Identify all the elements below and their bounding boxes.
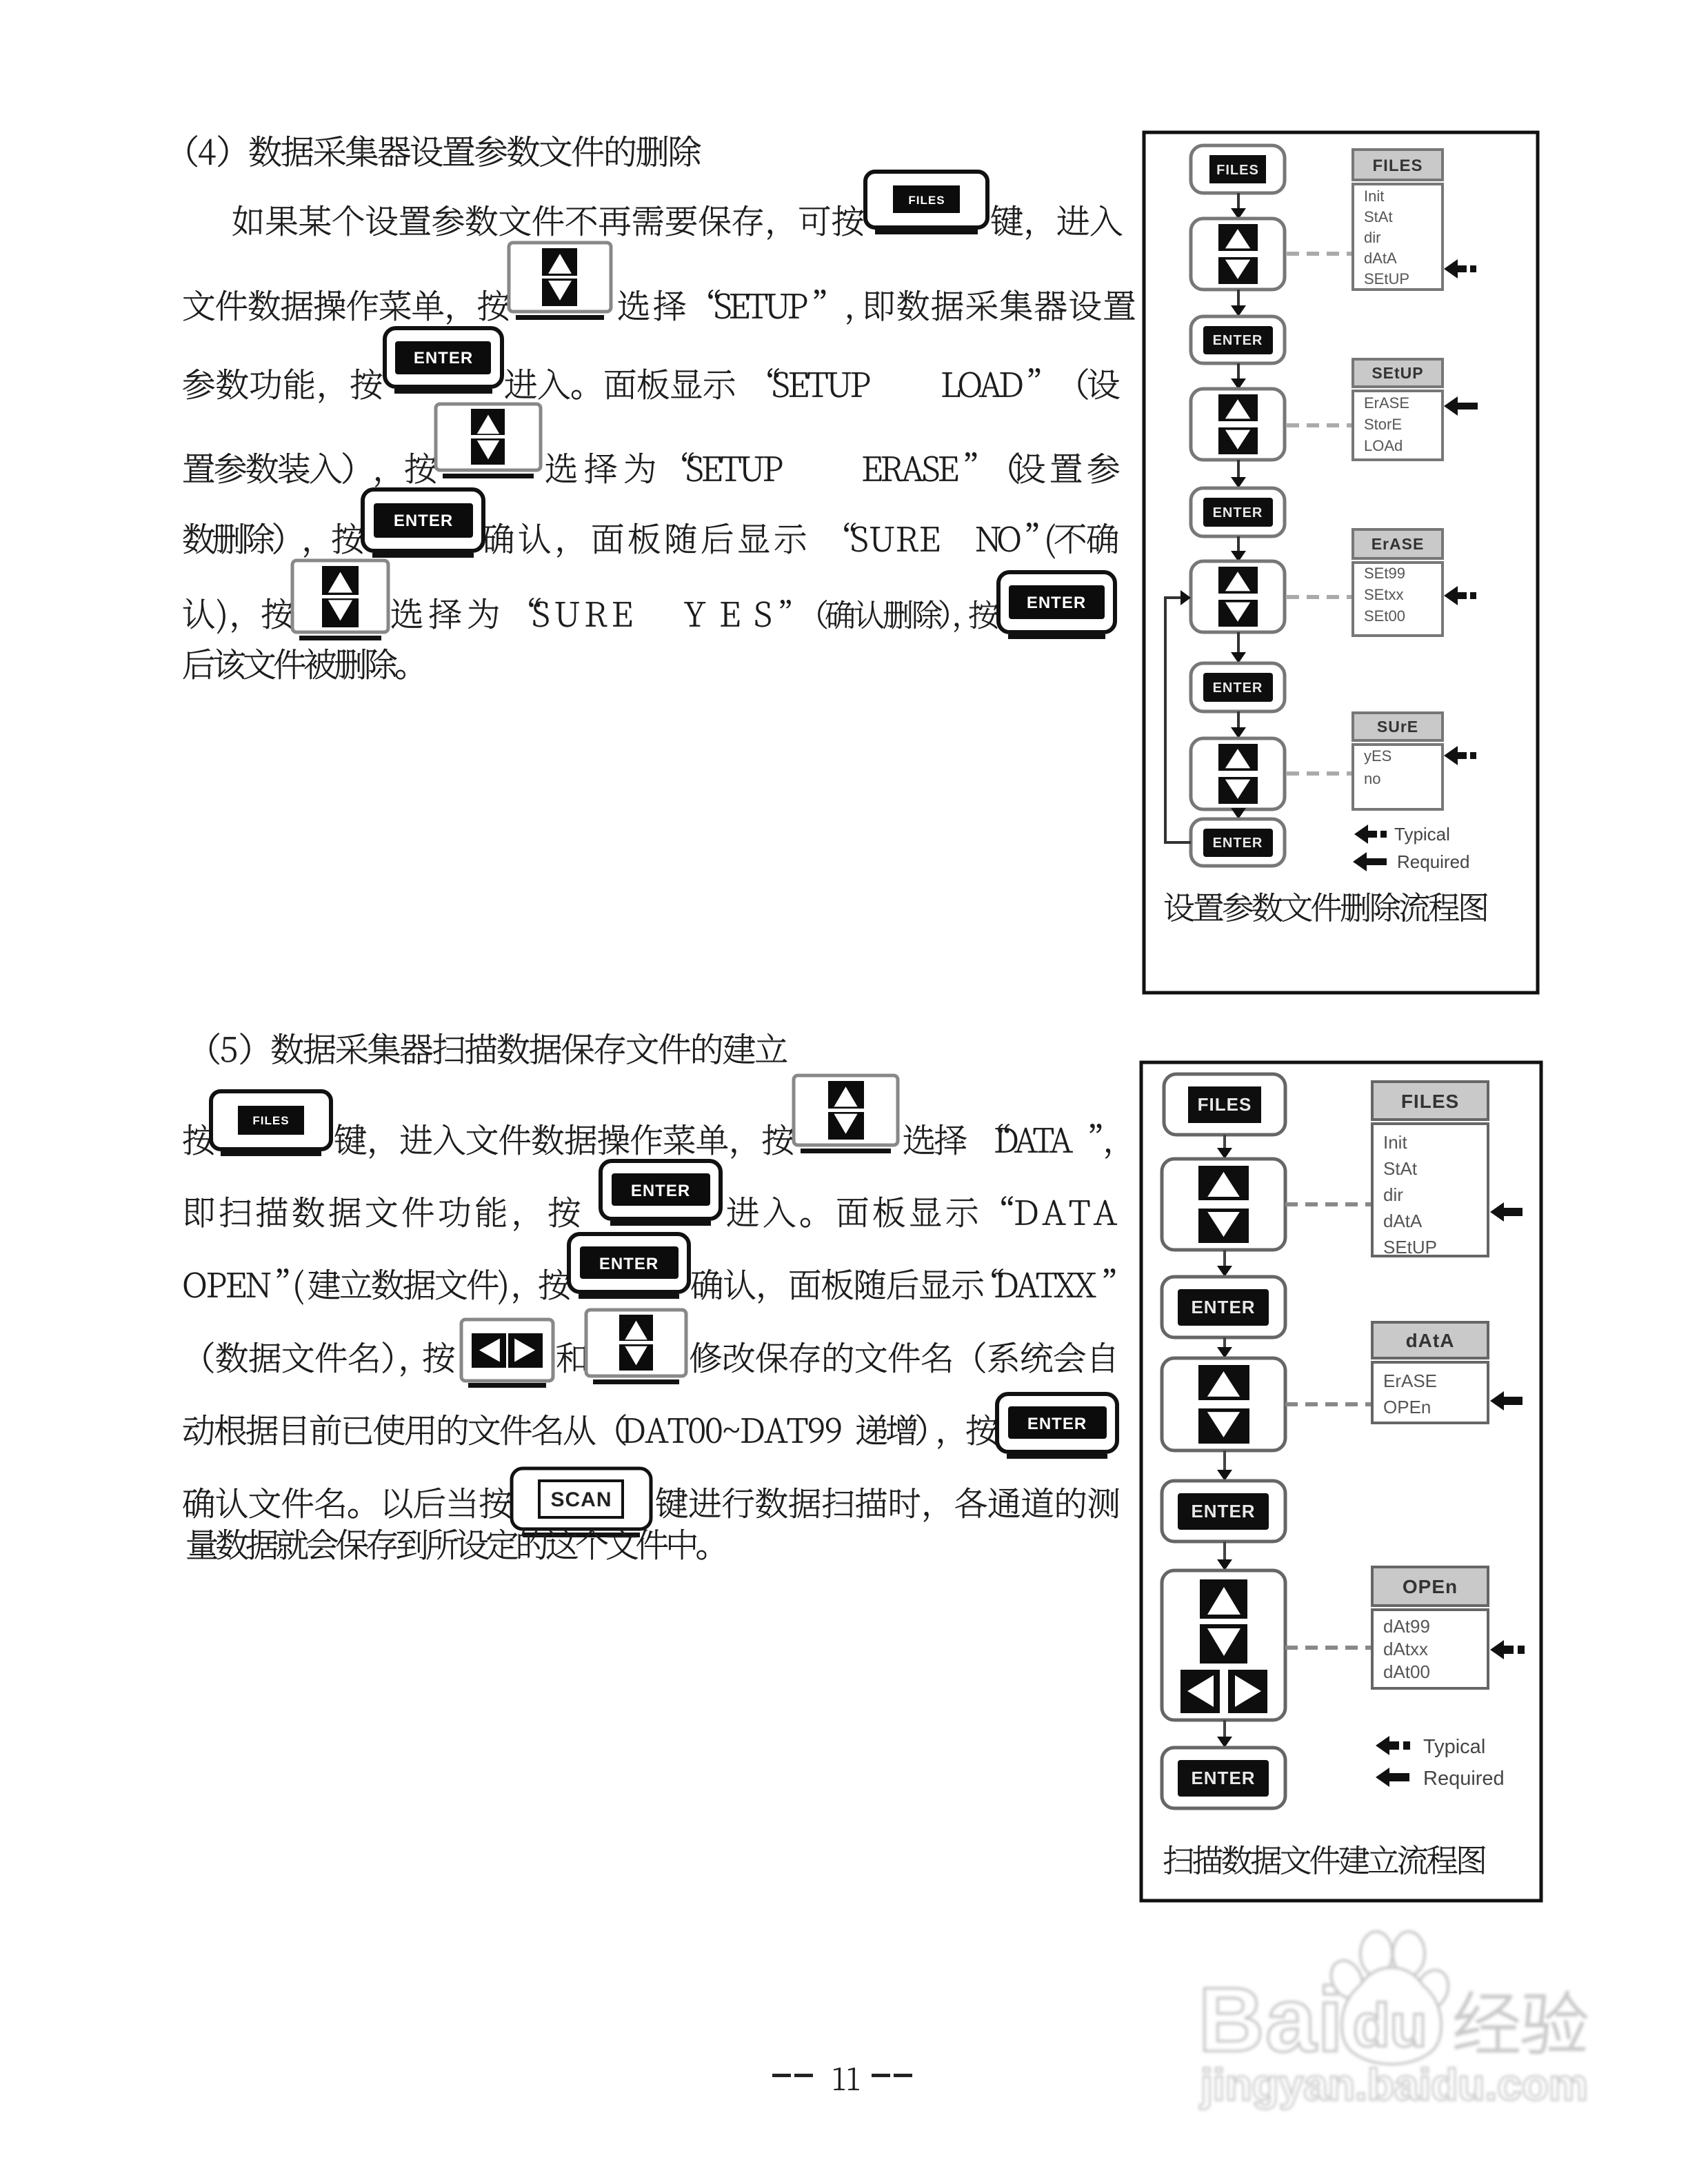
svg-text:FILES: FILES [1372,156,1423,175]
svg-text:SCAN: SCAN [550,1488,612,1511]
svg-text:yES: yES [1364,747,1391,765]
svg-text:LOAd: LOAd [1364,437,1403,454]
svg-text:Typical: Typical [1423,1736,1485,1758]
svg-text:ENTER: ENTER [394,512,453,530]
svg-text:dAt00: dAt00 [1383,1661,1430,1682]
svg-text:OPEn: OPEn [1383,1397,1431,1417]
svg-text:jingyan.baidu.com: jingyan.baidu.com [1200,2060,1588,2110]
svg-text:Required: Required [1397,851,1470,872]
svg-text:du: du [1353,1991,1427,2059]
svg-text:SEt00: SEt00 [1364,607,1405,625]
svg-text:ENTER: ENTER [1027,1415,1087,1433]
svg-text:ENTER: ENTER [1213,680,1263,696]
svg-text:ENTER: ENTER [1191,1501,1255,1521]
svg-text:ENTER: ENTER [414,349,473,367]
svg-text:ENTER: ENTER [1191,1297,1255,1317]
svg-text:FILES: FILES [252,1114,289,1127]
svg-text:ErASE: ErASE [1371,535,1425,553]
svg-text:SEtUP: SEtUP [1383,1237,1437,1257]
svg-text:ENTER: ENTER [1191,1768,1255,1788]
svg-text:SEtxx: SEtxx [1364,586,1403,603]
svg-text:Typical: Typical [1394,824,1450,845]
svg-text:ENTER: ENTER [1027,594,1086,612]
svg-text:Required: Required [1423,1768,1505,1790]
svg-text:ErASE: ErASE [1383,1371,1437,1391]
svg-text:no: no [1364,770,1380,787]
svg-text:SEtUP: SEtUP [1371,364,1423,382]
svg-text:FILES: FILES [1198,1094,1252,1115]
svg-text:StorE: StorE [1364,416,1402,433]
svg-text:SUrE: SUrE [1377,718,1418,736]
svg-text:ENTER: ENTER [1213,836,1263,851]
svg-text:StAt: StAt [1364,208,1393,225]
svg-text:dAtA: dAtA [1364,250,1397,267]
svg-text:StAt: StAt [1383,1158,1418,1179]
svg-text:ENTER: ENTER [1213,333,1263,348]
svg-text:ErASE: ErASE [1364,394,1409,412]
svg-text:SEtUP: SEtUP [1364,270,1409,287]
svg-text:Bai: Bai [1198,1969,1344,2070]
svg-text:FILES: FILES [1216,163,1259,178]
svg-text:FILES: FILES [1401,1091,1459,1112]
svg-text:dAtA: dAtA [1383,1211,1423,1231]
svg-text:Init: Init [1364,188,1384,205]
svg-text:dir: dir [1364,229,1380,246]
svg-text:FILES: FILES [908,194,945,207]
svg-text:ENTER: ENTER [599,1255,659,1273]
svg-text:dAtA: dAtA [1406,1330,1455,1351]
svg-text:dAtxx: dAtxx [1383,1639,1428,1659]
svg-text:Init: Init [1383,1132,1407,1153]
svg-text:OPEn: OPEn [1403,1576,1458,1597]
svg-text:dir: dir [1383,1184,1403,1205]
svg-text:ENTER: ENTER [1213,505,1263,520]
svg-text:dAt99: dAt99 [1383,1616,1430,1637]
svg-text:SEt99: SEt99 [1364,565,1405,582]
svg-text:ENTER: ENTER [631,1182,690,1200]
